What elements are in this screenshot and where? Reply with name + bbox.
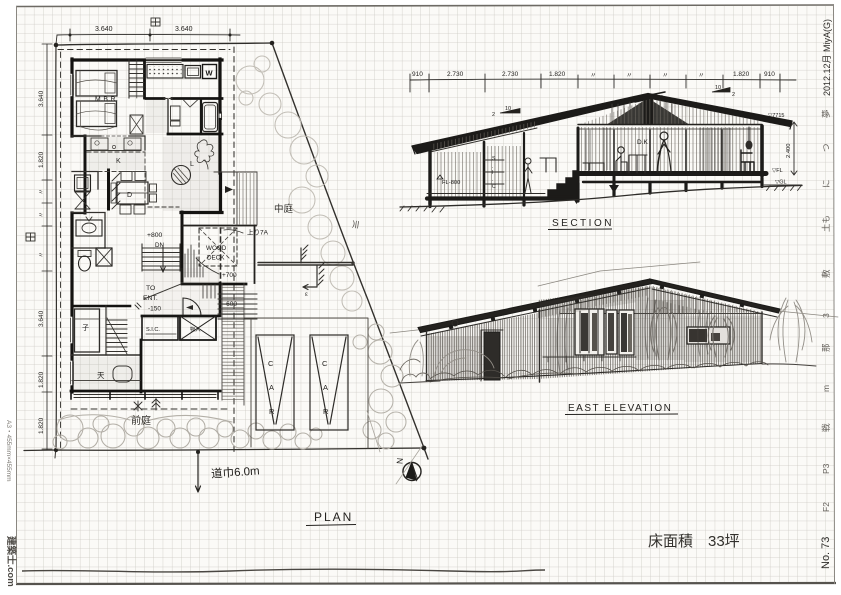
svg-text:)||: )|| [352,219,360,229]
svg-text:建築士.com: 建築士.com [5,535,17,587]
svg-text:〃: 〃 [698,72,705,79]
svg-text:2.730: 2.730 [502,71,519,78]
svg-text:敷: 敷 [821,269,831,278]
svg-text:子: 子 [82,324,89,332]
svg-text:910: 910 [764,71,775,78]
svg-text:戦: 戦 [821,423,831,432]
svg-text:S: S [492,156,496,162]
svg-text:m: m [821,385,831,392]
svg-text:1.820: 1.820 [38,151,45,168]
svg-text:EAST ELEVATION: EAST ELEVATION [568,403,672,414]
svg-text:+700: +700 [222,272,237,279]
svg-text:1.820: 1.820 [733,71,750,78]
svg-text:+800: +800 [147,232,163,239]
svg-text:10: 10 [715,85,721,91]
svg-text:床面積 33坪: 床面積 33坪 [648,533,740,550]
svg-text:3.640: 3.640 [38,90,45,107]
svg-text:DECK: DECK [207,255,225,262]
svg-text:1.820: 1.820 [38,417,45,434]
svg-text:〃: 〃 [662,72,669,79]
svg-text:〃: 〃 [38,212,45,219]
svg-text:SECTION: SECTION [552,218,614,229]
svg-text:D.K: D.K [637,139,649,146]
svg-text:〃: 〃 [590,72,597,79]
svg-text:A3・455mm×455mm: A3・455mm×455mm [5,420,12,482]
svg-text:R: R [323,407,329,416]
svg-text:F2: F2 [821,502,831,512]
svg-text:〃: 〃 [38,252,45,259]
svg-text:10: 10 [505,106,511,112]
svg-text:R: R [269,407,275,416]
svg-text:A: A [269,383,274,392]
svg-text:2: 2 [732,92,735,98]
svg-text:つ: つ [821,143,831,152]
svg-text:.: . [492,177,493,183]
svg-text:に: に [821,179,831,188]
svg-text:土も: 土も [821,215,831,232]
svg-text:〃: 〃 [38,189,45,196]
svg-text:〃: 〃 [626,72,633,79]
svg-text:那: 那 [821,343,831,352]
svg-text:前庭: 前庭 [131,414,151,427]
svg-text:3.640: 3.640 [95,26,113,33]
svg-text:S.I.C.: S.I.C. [146,327,160,333]
svg-text:2.400: 2.400 [786,143,792,158]
svg-text:W: W [206,69,214,78]
svg-text:3.640: 3.640 [175,26,193,33]
svg-text:C: C [268,359,274,368]
svg-text:物入: 物入 [190,325,200,333]
svg-text:中庭: 中庭 [274,203,294,215]
svg-text:910: 910 [412,71,423,78]
svg-text:PLAN: PLAN [314,510,353,524]
svg-text:▽FL: ▽FL [772,168,783,174]
svg-text:No. 73: No. 73 [820,537,832,569]
svg-text:WOOD: WOOD [206,245,227,252]
svg-text:C: C [322,359,328,368]
svg-text:M.B.R.: M.B.R. [95,96,118,103]
svg-text:N: N [395,457,405,464]
svg-text:C: C [492,184,496,190]
svg-text:▽7715: ▽7715 [768,113,784,119]
svg-text:1.820: 1.820 [549,71,566,78]
svg-text:FL-800: FL-800 [442,180,460,186]
svg-text:夢: 夢 [821,109,831,118]
svg-text:P3: P3 [821,463,831,474]
svg-text:A: A [323,383,328,392]
svg-text:I: I [492,170,493,176]
svg-text:1.820: 1.820 [38,371,45,388]
svg-text:2012.12月 MiyA(G): 2012.12月 MiyA(G) [822,19,832,96]
svg-text:上り7A: 上り7A [247,228,269,237]
svg-text:2.730: 2.730 [447,71,464,78]
svg-text:2: 2 [492,112,495,118]
svg-text:3.640: 3.640 [38,310,45,327]
svg-text:ε: ε [305,291,308,298]
